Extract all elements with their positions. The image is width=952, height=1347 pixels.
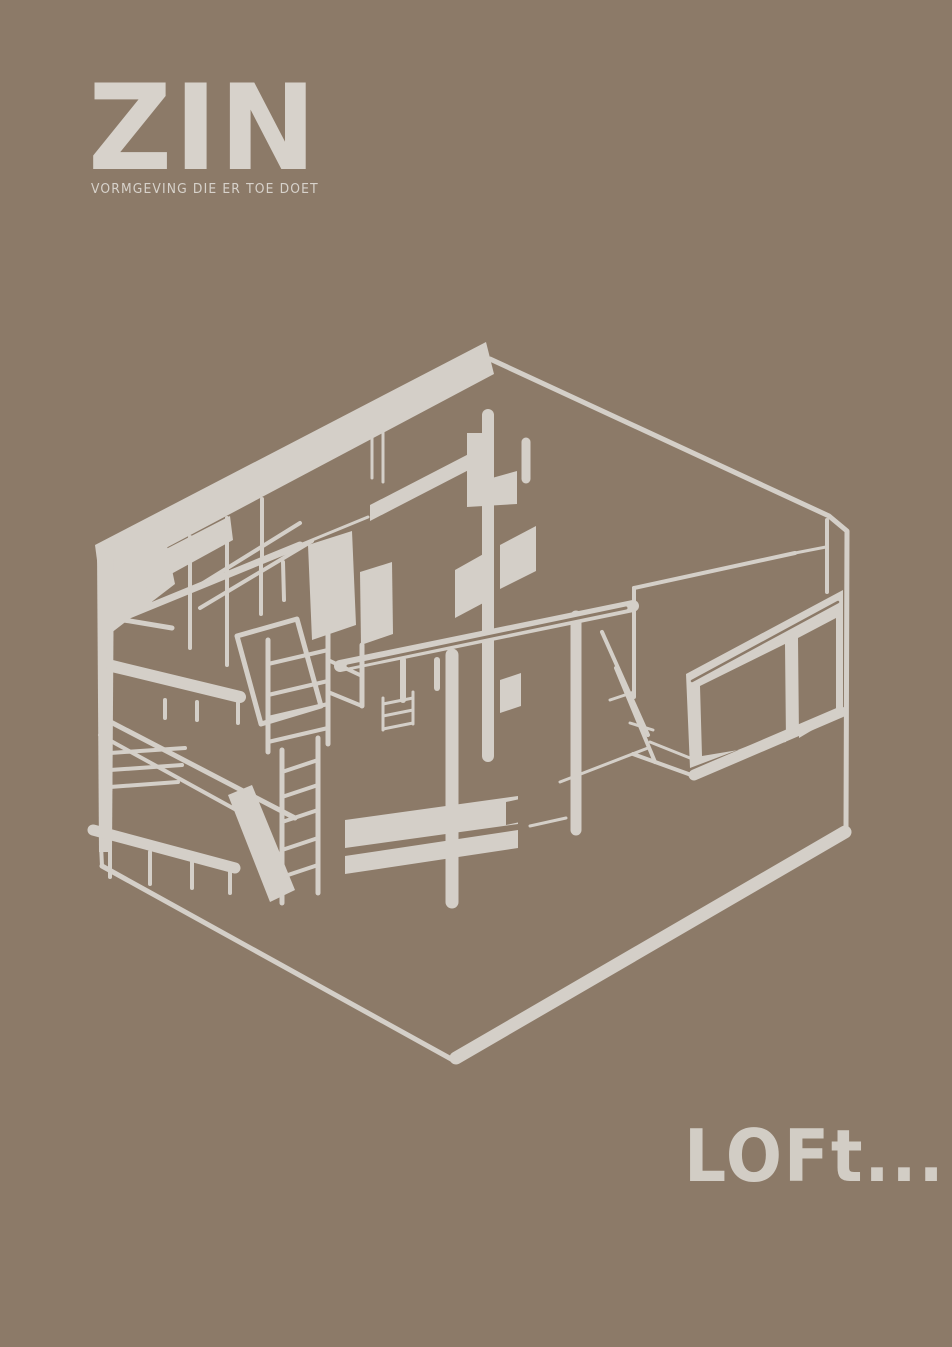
loft-caption: LOFt... xyxy=(684,1120,945,1192)
right-wall-window xyxy=(560,590,843,782)
ceiling-beams xyxy=(370,424,526,521)
poster-background: ZIN VORMGEVING DIE ER TOE DOET xyxy=(0,0,952,1347)
